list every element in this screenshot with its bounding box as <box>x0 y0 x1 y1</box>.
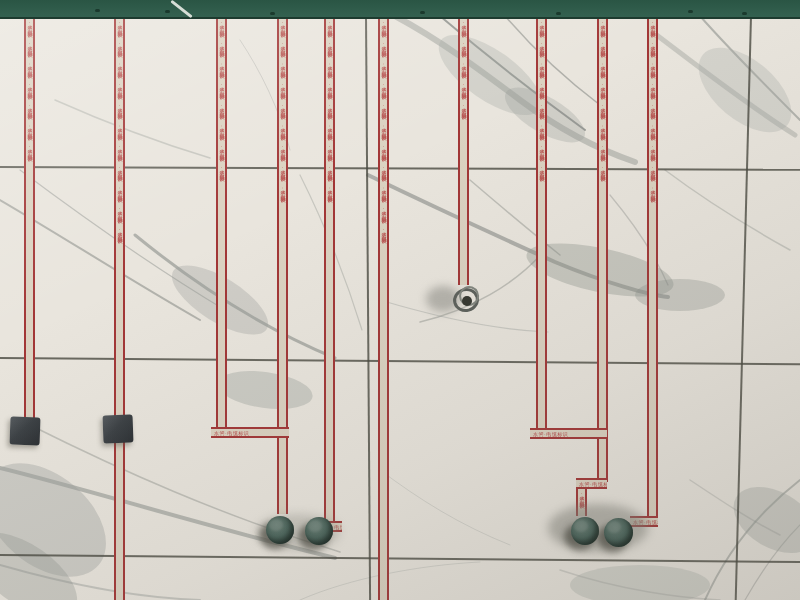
tape-label: 水管·电缆标识 <box>578 491 585 500</box>
marking-tape-elbow: 水管·电缆标识 <box>576 478 607 489</box>
wire-coil <box>452 285 484 317</box>
tape-label: 水管·电缆标识 水管·电缆标识 水管·电缆标识 水管·电缆标识 水管·电缆标识 … <box>218 20 225 173</box>
green-wall-strip <box>0 0 800 19</box>
pipe-cap <box>305 517 333 545</box>
marking-tape-run: 水管·电缆标识 水管·电缆标识 水管·电缆标识 水管·电缆标识 水管·电缆标识 … <box>216 16 227 432</box>
wall-speck <box>165 10 170 13</box>
marking-tape-elbow: 水管·电缆标识 <box>530 428 607 439</box>
marking-tape-run: 水管·电缆标识 水管·电缆标识 水管·电缆标识 水管·电缆标识 水管·电缆标识 … <box>378 16 389 600</box>
marking-tape-run: 水管·电缆标识 水管·电缆标识 水管·电缆标识 水管·电缆标识 水管·电缆标识 … <box>536 16 547 430</box>
marking-tape-run: 水管·电缆标识 水管·电缆标识 水管·电缆标识 水管·电缆标识 水管·电缆标识 … <box>24 16 35 418</box>
marking-tape-run: 水管·电缆标识 水管·电缆标识 水管·电缆标识 水管·电缆标识 水管·电缆标识 … <box>277 16 288 514</box>
wall-speck <box>688 10 693 13</box>
tape-label: 水管·电缆标识 <box>214 430 249 436</box>
tape-label: 水管·电缆标识 水管·电缆标识 水管·电缆标识 水管·电缆标识 水管·电缆标识 … <box>326 20 333 194</box>
marking-tape-run: 水管·电缆标识 水管·电缆标识 水管·电缆标识 水管·电缆标识 水管·电缆标识 … <box>324 16 335 528</box>
tape-label: 水管·电缆标识 水管·电缆标识 水管·电缆标识 水管·电缆标识 水管·电缆标识 … <box>116 20 123 235</box>
tape-label: 水管·电缆标识 水管·电缆标识 水管·电缆标识 水管·电缆标识 水管·电缆标识 … <box>26 20 33 153</box>
pipe-cap <box>604 518 633 547</box>
marking-tape-run: 水管·电缆标识 水管·电缆标识 水管·电缆标识 水管·电缆标识 水管·电缆标识 … <box>647 16 658 522</box>
wall-speck <box>95 9 100 12</box>
tape-label: 水管·电缆标识 水管·电缆标识 水管·电缆标识 水管·电缆标识 水管·电缆标识 … <box>279 20 286 194</box>
pipe-cap <box>571 517 599 545</box>
marking-tape-run: 水管·电缆标识 水管·电缆标识 水管·电缆标识 水管·电缆标识 水管·电缆标识 … <box>114 16 125 600</box>
wall-speck <box>420 11 425 14</box>
marking-tape-run: 水管·电缆标识 水管·电缆标识 水管·电缆标识 水管·电缆标识 水管·电缆标识 … <box>597 16 608 482</box>
tape-label: 水管·电缆标识 水管·电缆标识 水管·电缆标识 水管·电缆标识 水管·电缆标识 … <box>538 20 545 173</box>
wall-speck <box>556 12 561 15</box>
marking-tape-elbow: 水管·电缆标识 <box>211 427 289 438</box>
tape-label: 水管·电缆标识 <box>579 481 607 487</box>
tape-label: 水管·电缆标识 <box>533 431 568 437</box>
pipe-cap <box>266 516 294 544</box>
junction-box-cover <box>10 416 41 445</box>
wall-speck <box>270 12 275 15</box>
marking-tape-run: 水管·电缆标识 水管·电缆标识 水管·电缆标识 水管·电缆标识 水管·电缆标识 <box>458 16 469 285</box>
wall-scratch <box>170 0 192 18</box>
tape-label: 水管·电缆标识 水管·电缆标识 水管·电缆标识 水管·电缆标识 水管·电缆标识 … <box>599 20 606 173</box>
tape-label: 水管·电缆标识 水管·电缆标识 水管·电缆标识 水管·电缆标识 水管·电缆标识 … <box>649 20 656 194</box>
junction-box-cover <box>103 414 134 443</box>
photo-tile-floor: 水管·电缆标识 水管·电缆标识 水管·电缆标识 水管·电缆标识 水管·电缆标识 … <box>0 0 800 600</box>
tape-label: 水管·电缆标识 水管·电缆标识 水管·电缆标识 水管·电缆标识 水管·电缆标识 … <box>380 20 387 235</box>
tape-label: 水管·电缆标识 水管·电缆标识 水管·电缆标识 水管·电缆标识 水管·电缆标识 <box>460 20 467 111</box>
wall-speck <box>742 12 747 15</box>
